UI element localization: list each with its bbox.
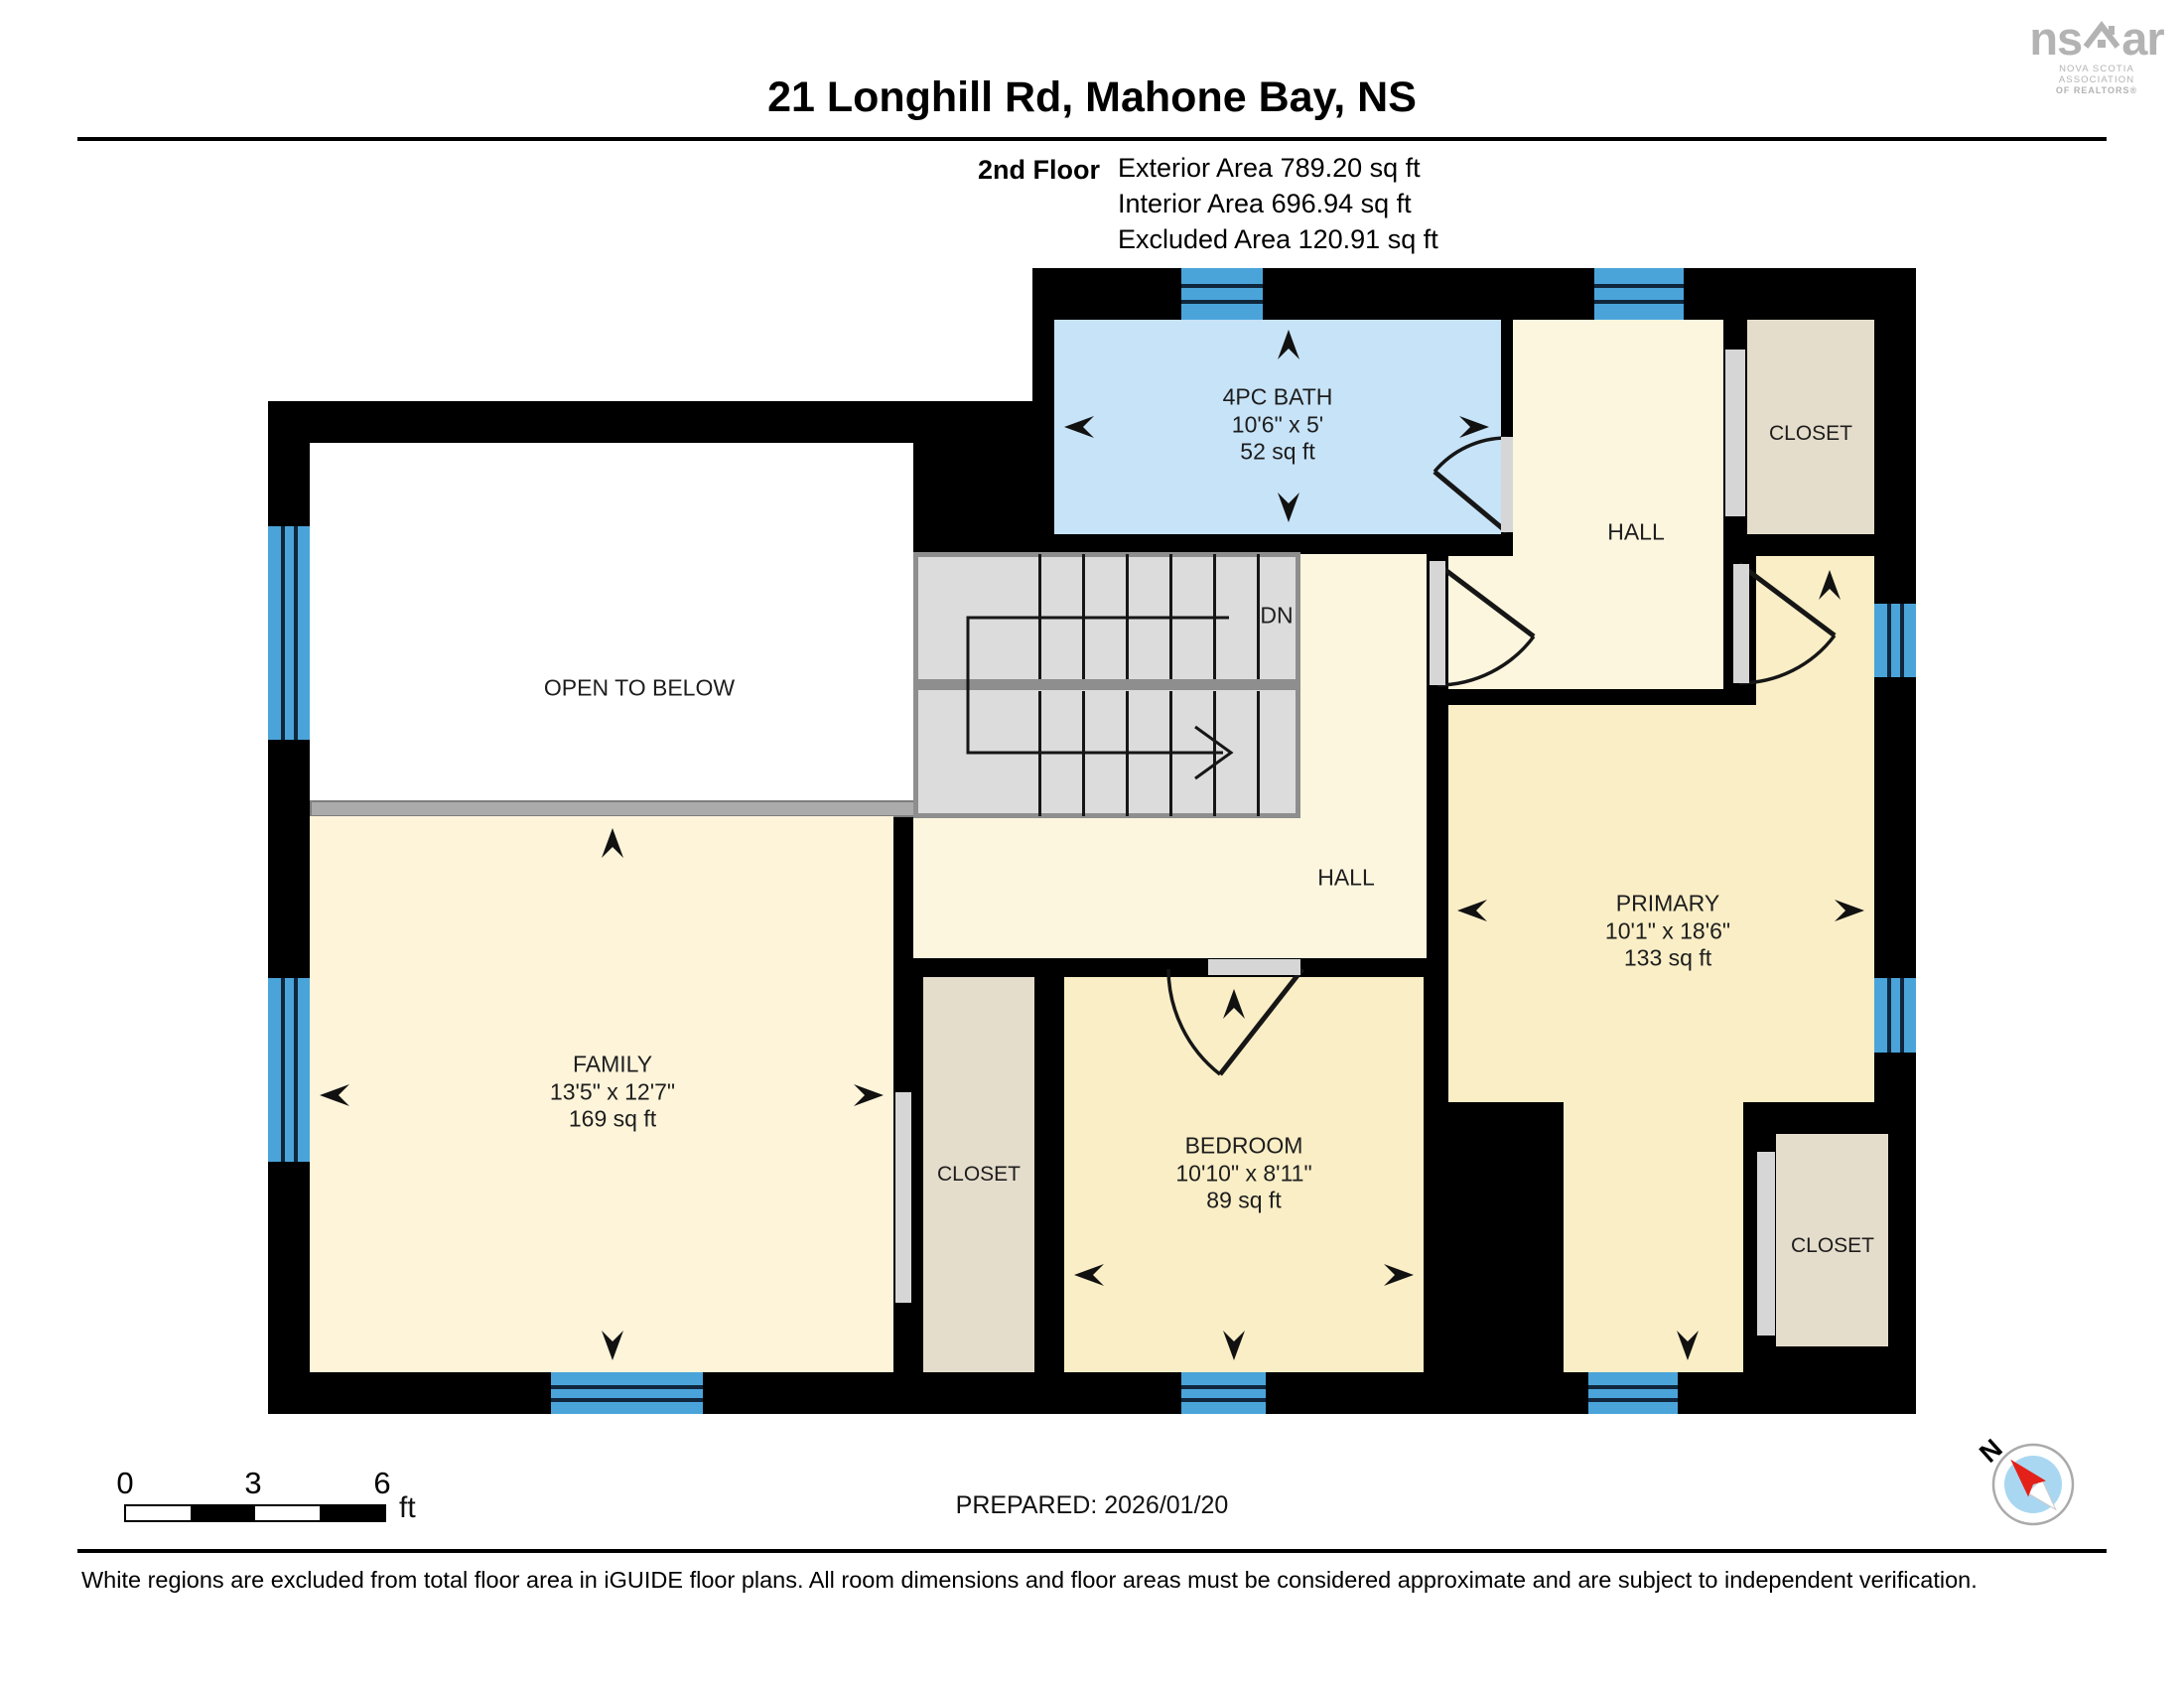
window	[1594, 268, 1684, 320]
closet-bottom-sliding-door	[1757, 1152, 1775, 1336]
stair-tread-line	[1169, 691, 1172, 816]
room-region-primary-top	[1756, 556, 1874, 705]
window-pane-line	[1588, 1398, 1678, 1402]
floor-plan-page: 21 Longhill Rd, Mahone Bay, NS 2nd Floor…	[0, 0, 2184, 1688]
room-region-hall-lower-a	[1300, 554, 1427, 818]
room-label-bath: 4PC BATH10'6" x 5'52 sq ft	[1223, 384, 1333, 467]
logo-text-right: ar	[2121, 18, 2163, 60]
room-region-primary-lower	[1564, 1102, 1743, 1372]
stair-tread-line	[1126, 554, 1129, 679]
page-title: 21 Longhill Rd, Mahone Bay, NS	[0, 73, 2184, 122]
header-divider	[77, 137, 2107, 141]
window	[268, 526, 310, 740]
room-label-primary: PRIMARY10'1" x 18'6"133 sq ft	[1605, 891, 1730, 973]
window-pane-line	[1181, 1398, 1266, 1402]
window-pane-line	[1181, 300, 1263, 304]
bedroom-door	[1208, 959, 1300, 975]
prepared-date: PREPARED: 2026/01/20	[0, 1491, 2184, 1520]
disclaimer-text: White regions are excluded from total fl…	[81, 1567, 1978, 1594]
closet-top-sliding-door	[1725, 350, 1745, 516]
window-pane-line	[294, 978, 298, 1162]
room-region-hall-upper-neck	[1448, 556, 1723, 689]
window-pane-line	[281, 526, 285, 740]
room-label-family: FAMILY13'5" x 12'7"169 sq ft	[550, 1052, 675, 1134]
window-pane-line	[1900, 604, 1904, 677]
window-pane-line	[551, 1385, 703, 1389]
closet-mid-sliding-door	[895, 1092, 911, 1303]
railing	[310, 800, 929, 817]
window	[268, 978, 310, 1162]
stair-tread-line	[1082, 691, 1085, 816]
window	[1874, 978, 1916, 1053]
logo-subtitle-2: OF REALTORS®	[2021, 85, 2172, 95]
floor-info: 2nd Floor Exterior Area 789.20 sq ft Int…	[978, 155, 1438, 262]
stair-tread-line	[1038, 691, 1041, 816]
room-region-open-to-below	[310, 443, 913, 800]
stair-tread-line	[1038, 554, 1041, 679]
window-pane-line	[1181, 1385, 1266, 1389]
window	[1181, 268, 1263, 320]
window	[1588, 1372, 1678, 1414]
stair-tread-line	[1169, 554, 1172, 679]
label-closet-top: CLOSET	[1769, 422, 1852, 446]
window-pane-line	[1900, 978, 1904, 1053]
window	[1874, 604, 1916, 677]
label-closet-bottom: CLOSET	[1791, 1234, 1874, 1258]
hall-right-door	[1733, 564, 1749, 683]
nsar-logo: ns ar NOVA SCOTIA ASSOCIATION OF REALTOR…	[2021, 18, 2172, 95]
stair-tread-line	[1257, 691, 1260, 816]
window-pane-line	[1887, 978, 1891, 1053]
house-icon	[2083, 18, 2120, 60]
footer-divider	[77, 1549, 2107, 1553]
window-pane-line	[1181, 284, 1263, 288]
stair-tread-line	[1126, 691, 1129, 816]
window-pane-line	[294, 526, 298, 740]
window-pane-line	[1588, 1385, 1678, 1389]
interior-area: Interior Area 696.94 sq ft	[1118, 191, 1438, 217]
stair-tread-line	[1082, 554, 1085, 679]
label-stairs-dn: DN	[1260, 603, 1293, 630]
logo-subtitle-1: NOVA SCOTIA ASSOCIATION	[2021, 64, 2172, 85]
room-label-bedroom: BEDROOM10'10" x 8'11"89 sq ft	[1175, 1133, 1311, 1215]
window-pane-line	[1887, 604, 1891, 677]
label-open-to-below: OPEN TO BELOW	[544, 675, 735, 702]
label-hall-upper: HALL	[1607, 519, 1665, 546]
label-hall-lower: HALL	[1317, 865, 1375, 892]
excluded-area: Excluded Area 120.91 sq ft	[1118, 226, 1438, 253]
window	[1181, 1372, 1266, 1414]
window-pane-line	[1594, 284, 1684, 288]
floor-label: 2nd Floor	[978, 155, 1100, 262]
stair-tread-line	[1213, 691, 1216, 816]
window-pane-line	[551, 1398, 703, 1402]
compass-icon	[1983, 1435, 2083, 1534]
window-pane-line	[281, 978, 285, 1162]
label-closet-mid: CLOSET	[937, 1163, 1021, 1187]
hall-left-door	[1430, 561, 1445, 685]
logo-text-left: ns	[2029, 18, 2082, 60]
staircase-divider	[915, 679, 1298, 690]
stair-tread-line	[1213, 554, 1216, 679]
exterior-area: Exterior Area 789.20 sq ft	[1118, 155, 1438, 182]
bath-door	[1501, 437, 1513, 532]
window	[551, 1372, 703, 1414]
window-pane-line	[1594, 300, 1684, 304]
